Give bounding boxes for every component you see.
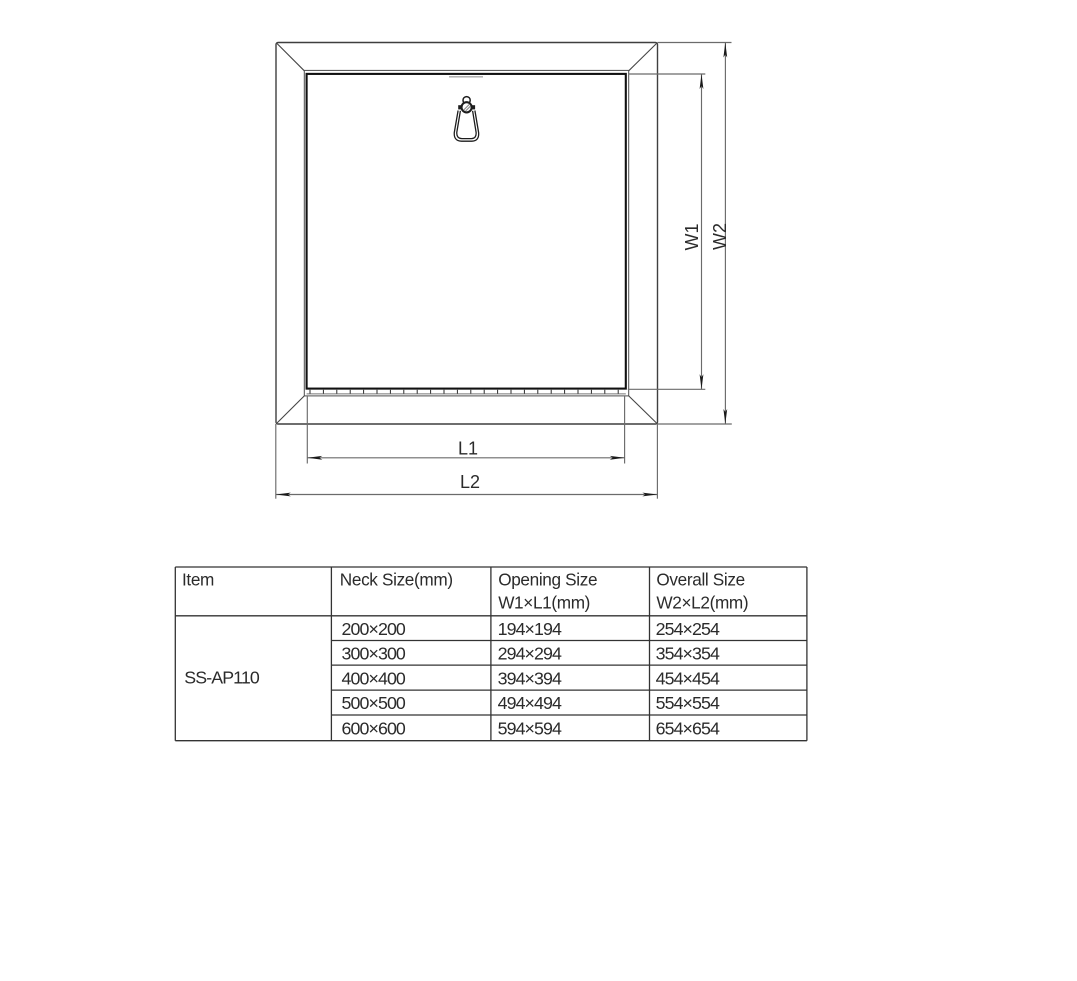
svg-text:354×354: 354×354 [656, 644, 720, 664]
svg-text:454×454: 454×454 [656, 668, 720, 688]
svg-text:554×554: 554×554 [656, 693, 720, 713]
svg-text:194×194: 194×194 [498, 619, 562, 639]
svg-text:L2: L2 [460, 472, 480, 492]
svg-text:500×500: 500×500 [342, 693, 406, 713]
svg-text:494×494: 494×494 [498, 693, 562, 713]
svg-text:W1×L1(mm): W1×L1(mm) [498, 592, 590, 612]
svg-text:W2×L2(mm): W2×L2(mm) [656, 592, 748, 612]
svg-text:300×300: 300×300 [342, 644, 406, 664]
svg-text:SS-AP110: SS-AP110 [184, 668, 260, 688]
svg-text:600×600: 600×600 [342, 719, 406, 739]
svg-text:400×400: 400×400 [342, 668, 406, 688]
svg-text:Item: Item [182, 569, 214, 589]
svg-text:Neck Size(mm): Neck Size(mm) [340, 569, 453, 589]
svg-text:L1: L1 [458, 439, 478, 459]
svg-text:W1: W1 [682, 224, 702, 251]
svg-text:254×254: 254×254 [656, 619, 720, 639]
svg-text:W2: W2 [710, 223, 730, 250]
svg-text:Opening Size: Opening Size [498, 569, 597, 589]
svg-text:394×394: 394×394 [498, 668, 562, 688]
svg-text:294×294: 294×294 [498, 644, 562, 664]
svg-text:Overall Size: Overall Size [656, 569, 744, 589]
svg-text:594×594: 594×594 [498, 719, 562, 739]
svg-text:200×200: 200×200 [342, 619, 406, 639]
svg-text:654×654: 654×654 [656, 719, 720, 739]
